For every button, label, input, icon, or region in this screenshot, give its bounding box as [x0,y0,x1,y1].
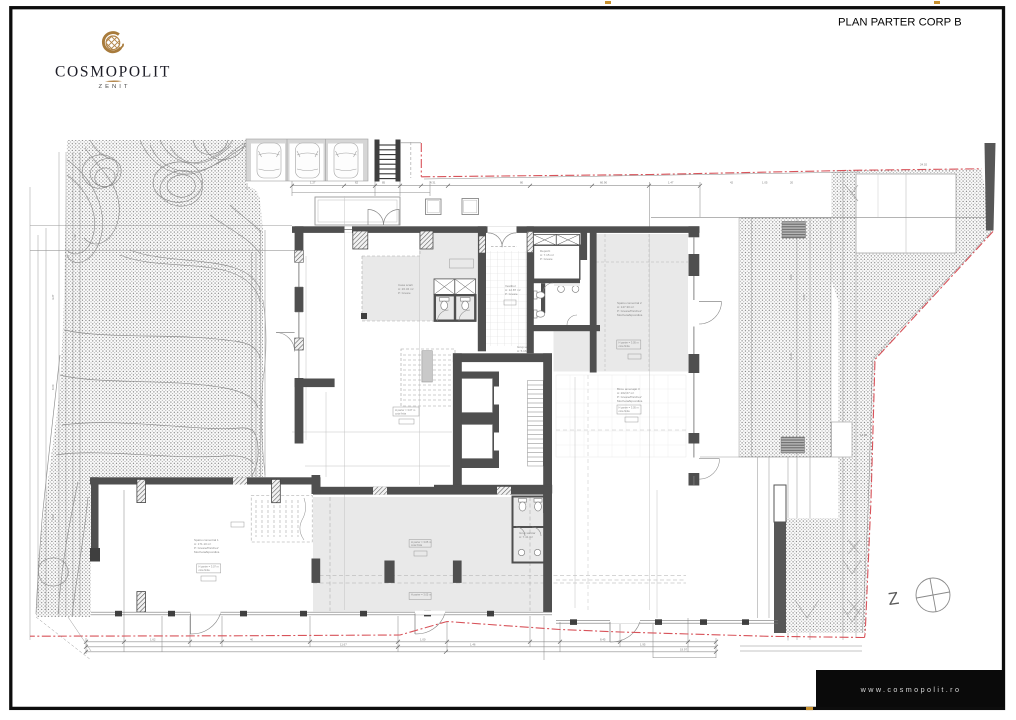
svg-text:85: 85 [382,181,386,185]
svg-text:H parter = 3.07 m: H parter = 3.07 m [395,408,415,412]
svg-text:6.60: 6.60 [51,514,55,520]
svg-text:3.00: 3.00 [802,294,806,300]
svg-text:1.95: 1.95 [640,643,646,647]
svg-text:60.90: 60.90 [600,181,607,185]
svg-text:14.00: 14.00 [860,433,867,437]
svg-text:1.00: 1.00 [420,638,426,642]
svg-text:1.40: 1.40 [73,234,77,240]
svg-text:80: 80 [520,181,524,185]
svg-text:8.60: 8.60 [51,384,55,390]
svg-text:P: Gresie: P: Gresie [505,292,518,296]
svg-text:P: Gresie: P: Gresie [540,257,553,261]
svg-text:Mocheta/Epoxidica: Mocheta/Epoxidica [617,399,643,403]
svg-text:PLAN PARTER CORP B: PLAN PARTER CORP B [838,16,962,28]
svg-text:1.46: 1.46 [470,643,476,647]
svg-text:Mocheta/Epoxidica: Mocheta/Epoxidica [617,313,643,317]
svg-text:4.31: 4.31 [430,181,436,185]
svg-text:P: Gresie: P: Gresie [398,291,411,295]
svg-text:H parter = 3.07 m: H parter = 3.07 m [199,565,219,569]
svg-text:1.47: 1.47 [668,181,674,185]
svg-text:40: 40 [250,638,254,642]
svg-text:ZENIT: ZENIT [98,84,130,90]
svg-text:24.02: 24.02 [920,163,927,167]
svg-text:cota finita: cota finita [199,568,211,572]
svg-text:www.cosmopolit.ro: www.cosmopolit.ro [860,685,962,694]
svg-text:cota finita: cota finita [411,543,423,547]
svg-text:1.27: 1.27 [310,181,316,185]
svg-text:COSMOPOLIT: COSMOPOLIT [55,64,171,81]
svg-text:10.00: 10.00 [789,353,793,360]
svg-text:5.00: 5.00 [789,274,793,280]
svg-text:Mocheta/Epoxidica: Mocheta/Epoxidica [194,550,220,554]
svg-text:19.97: 19.97 [680,648,687,652]
svg-text:cota finita: cota finita [395,412,407,416]
svg-text:cota finita: cota finita [619,344,631,348]
svg-text:4.27: 4.27 [51,294,55,300]
svg-text:42: 42 [730,181,734,185]
svg-text:20: 20 [790,181,794,185]
svg-text:8.45: 8.45 [600,638,606,642]
svg-text:62: 62 [355,181,359,185]
svg-text:H parter = 3.05 m: H parter = 3.05 m [619,341,639,345]
svg-text:1.05: 1.05 [762,181,768,185]
svg-text:1.62: 1.62 [150,638,156,642]
svg-text:11.67: 11.67 [340,643,347,647]
svg-text:H parter = 3.05 m: H parter = 3.05 m [619,406,639,410]
svg-text:A: 7.41 m²: A: 7.41 m² [519,535,533,539]
svg-text:H parter = 3.05 m: H parter = 3.05 m [411,593,431,597]
svg-text:cota finita: cota finita [619,409,631,413]
